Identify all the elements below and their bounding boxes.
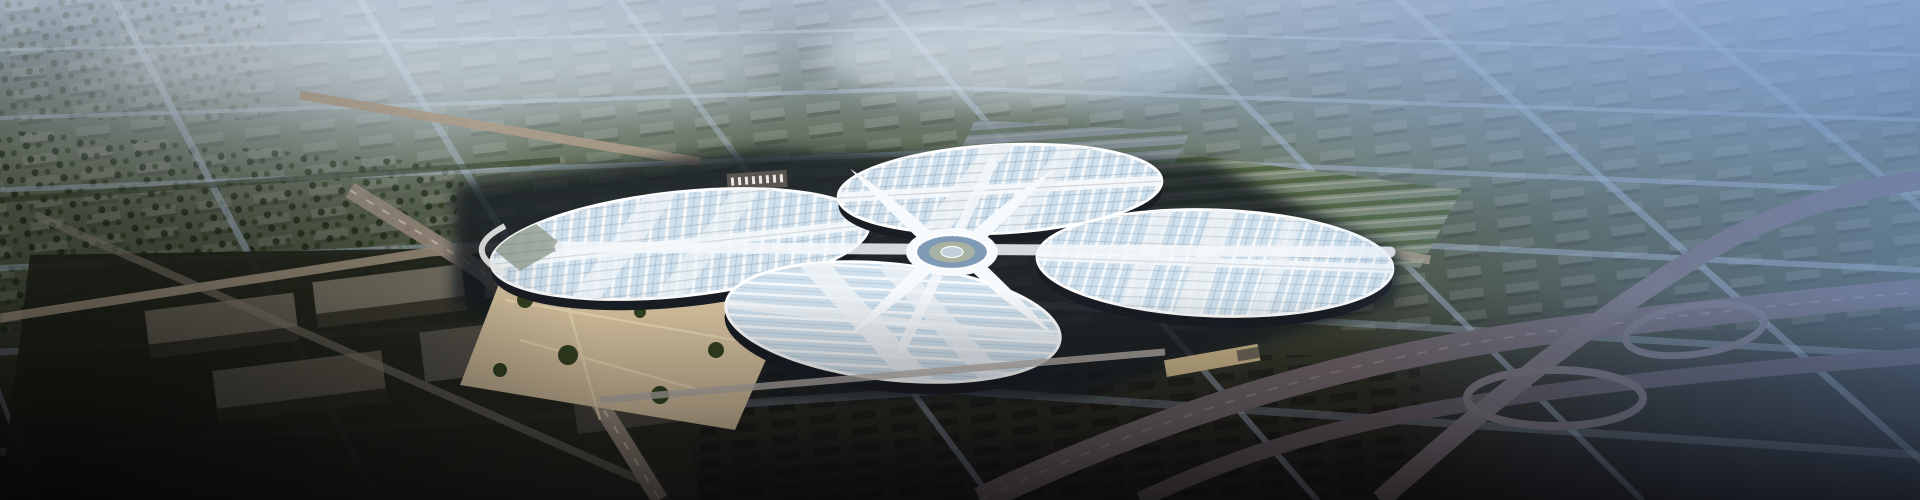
aerial-rendering-svg: Hazy aerial rendering of a vast exhibiti… bbox=[0, 0, 1920, 500]
corner-vignette bbox=[0, 0, 1920, 500]
banner-image: Hazy aerial rendering of a vast exhibiti… bbox=[0, 0, 1920, 500]
